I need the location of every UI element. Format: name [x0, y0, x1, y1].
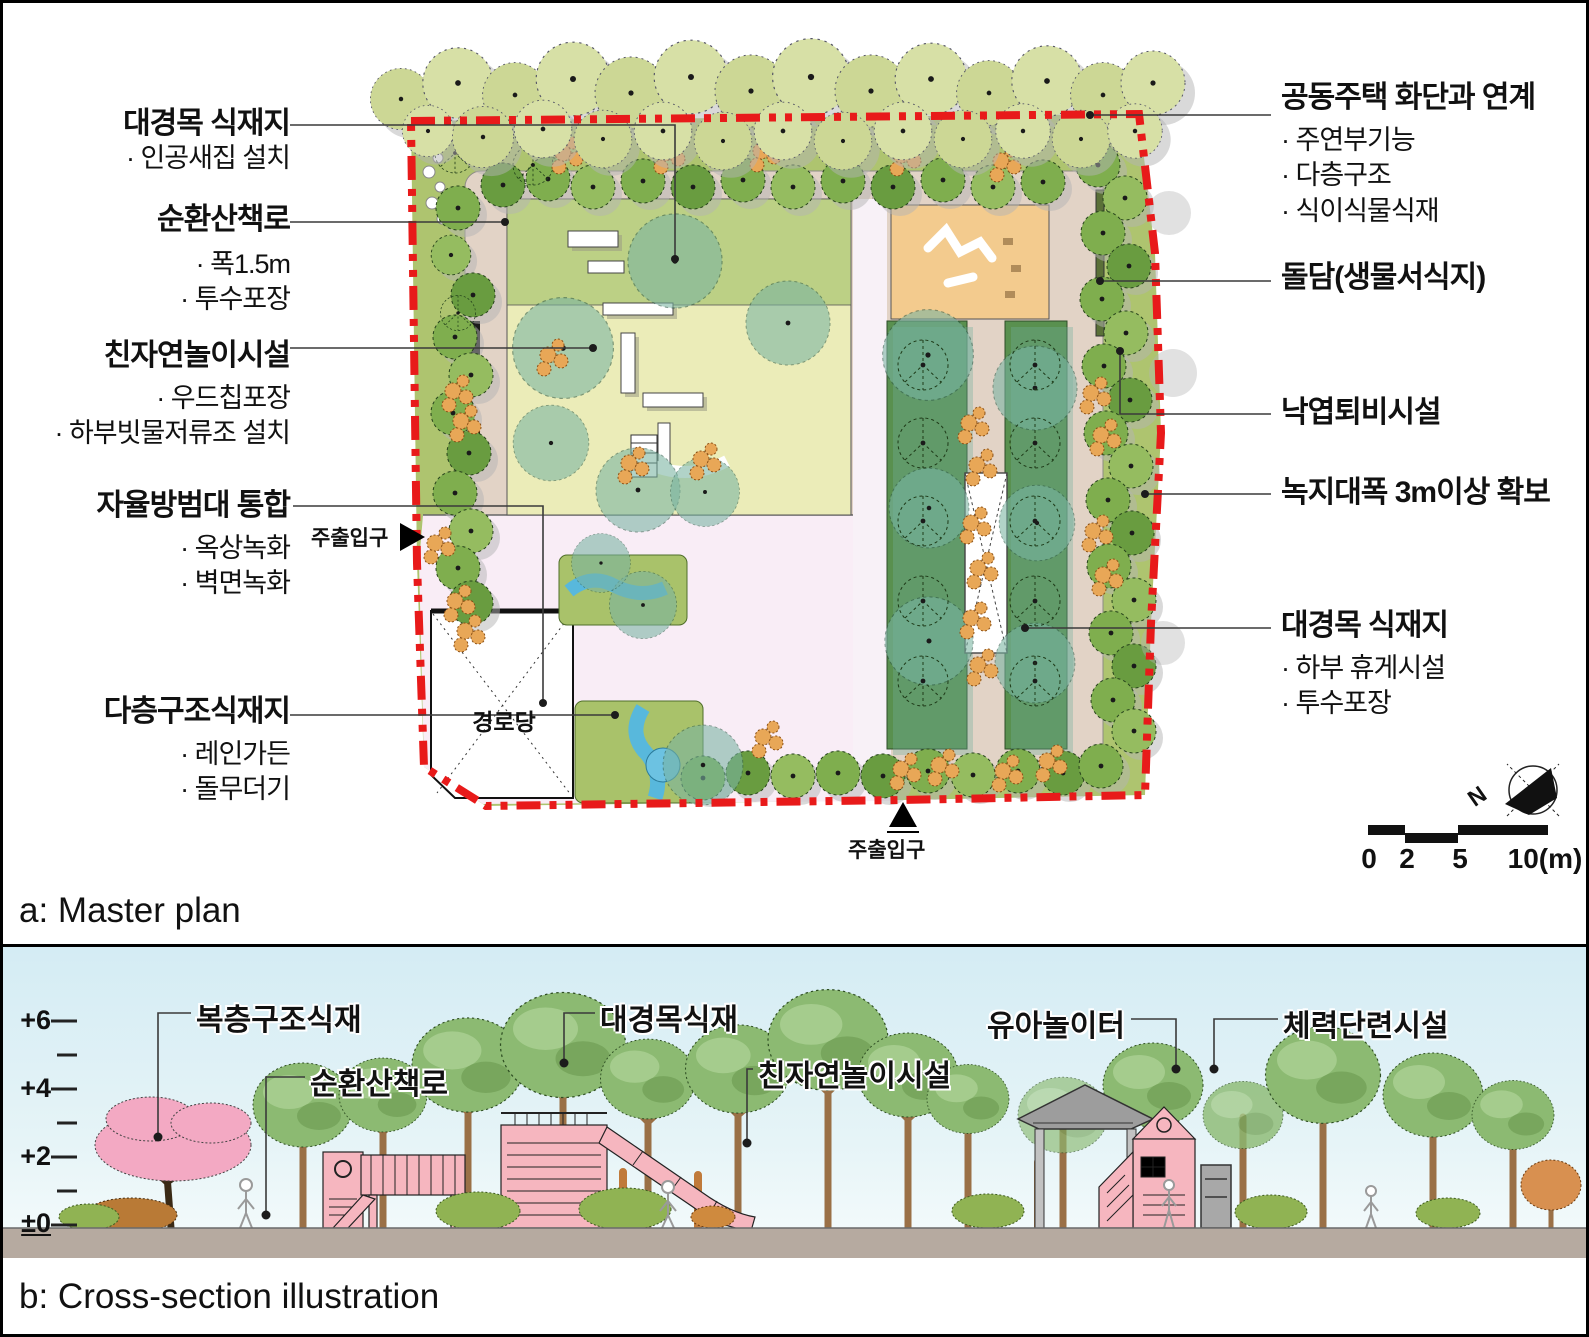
plan-label-stone-wall: 돌담(생물서식지) — [1281, 261, 1589, 295]
label-item: 다층구조 — [1281, 158, 1589, 194]
scale-bar — [1368, 825, 1548, 843]
scale-label-0: 0 — [1361, 843, 1377, 875]
label-item: 옥상녹화 — [3, 531, 290, 567]
plan-label-apartment-flowerbed: 공동주택 화단과 연계 주연부기능 다층구조 식이식물식재 — [1281, 81, 1589, 229]
label-title: 친자연놀이시설 — [3, 339, 290, 373]
label-title: 돌담(생물서식지) — [1281, 261, 1589, 295]
label-title: 대경목 식재지 — [1281, 609, 1589, 643]
label-item: 하부 휴게시설 — [1281, 651, 1589, 687]
elevation-mark-0: ±0 — [7, 1208, 51, 1239]
compass — [1505, 764, 1559, 816]
entrance-label-left: 주출입구 — [311, 522, 388, 552]
label-title: 순환산책로 — [3, 203, 290, 237]
toddler-play-area — [891, 205, 1049, 319]
label-item: 폭1.5m — [3, 247, 290, 283]
ground-strip — [3, 1228, 1589, 1258]
scale-label-10m: 10(m) — [1508, 843, 1583, 875]
section-label-loop-trail: 순환산책로 — [310, 1059, 448, 1103]
label-title: 낙엽퇴비시설 — [1281, 396, 1589, 430]
label-item: 인공새집 설치 — [3, 141, 290, 177]
panel-b-caption: b: Cross-section illustration — [19, 1277, 439, 1317]
label-title: 대경목 식재지 — [3, 107, 290, 141]
plan-label-loop-trail: 순환산책로 폭1.5m 투수포장 — [3, 203, 290, 318]
label-item: 투수포장 — [3, 282, 290, 318]
label-title: 공동주택 화단과 연계 — [1281, 81, 1589, 115]
entrance-arrow-bottom — [887, 802, 919, 832]
plan-label-greenbelt-width: 녹지대폭 3m이상 확보 — [1281, 476, 1589, 510]
section-label-large-tree-planting: 대경목식재 — [600, 995, 738, 1039]
plan-label-compost: 낙엽퇴비시설 — [1281, 396, 1589, 430]
scale-label-2: 2 — [1399, 843, 1415, 875]
elevation-mark-6: +6 — [7, 1005, 51, 1036]
label-item: 주연부기능 — [1281, 123, 1589, 159]
panel-a-caption: a: Master plan — [19, 891, 241, 931]
plan-label-large-tree-area: 대경목 식재지 인공새집 설치 — [3, 107, 290, 176]
label-item: 돌무더기 — [3, 772, 290, 808]
elevation-mark-4: +4 — [7, 1073, 51, 1104]
label-title: 다층구조식재지 — [3, 695, 290, 729]
elevation-mark-2: +2 — [7, 1141, 51, 1172]
label-item: 식이식물식재 — [1281, 194, 1589, 230]
label-item: 우드칩포장 — [3, 381, 290, 417]
section-label-fitness-facility: 체력단련시설 — [1283, 1001, 1449, 1045]
entrance-label-bottom: 주출입구 — [848, 834, 925, 864]
label-title: 자율방범대 통합 — [3, 489, 290, 523]
figure-container: 대경목 식재지 인공새집 설치 순환산책로 폭1.5m 투수포장 친자연놀이시설… — [0, 0, 1589, 1337]
plan-label-patrol-integration: 자율방범대 통합 옥상녹화 벽면녹화 — [3, 489, 290, 602]
plan-label-nature-play: 친자연놀이시설 우드칩포장 하부빗물저류조 설치 — [3, 339, 290, 452]
section-label-toddler-playground: 유아놀이터 — [987, 1001, 1125, 1045]
section-label-multilayer-planting: 복층구조식재 — [196, 995, 362, 1039]
label-title: 녹지대폭 3m이상 확보 — [1281, 476, 1589, 510]
plan-label-multilayer-planting: 다층구조식재지 레인가든 돌무더기 — [3, 695, 290, 808]
building-label: 경로당 — [465, 703, 543, 737]
label-item: 벽면녹화 — [3, 566, 290, 602]
scale-label-5: 5 — [1452, 843, 1468, 875]
label-item: 레인가든 — [3, 737, 290, 773]
label-item: 하부빗물저류조 설치 — [3, 416, 290, 452]
top-tree-band — [370, 39, 1195, 178]
label-item: 투수포장 — [1281, 686, 1589, 722]
plan-label-large-tree-area-right: 대경목 식재지 하부 휴게시설 투수포장 — [1281, 609, 1589, 722]
section-label-nature-play: 친자연놀이시설 — [758, 1051, 951, 1095]
cross-section-panel: 복층구조식재 순환산책로 대경목식재 친자연놀이시설 유아놀이터 체력단련시설 … — [3, 947, 1589, 1337]
